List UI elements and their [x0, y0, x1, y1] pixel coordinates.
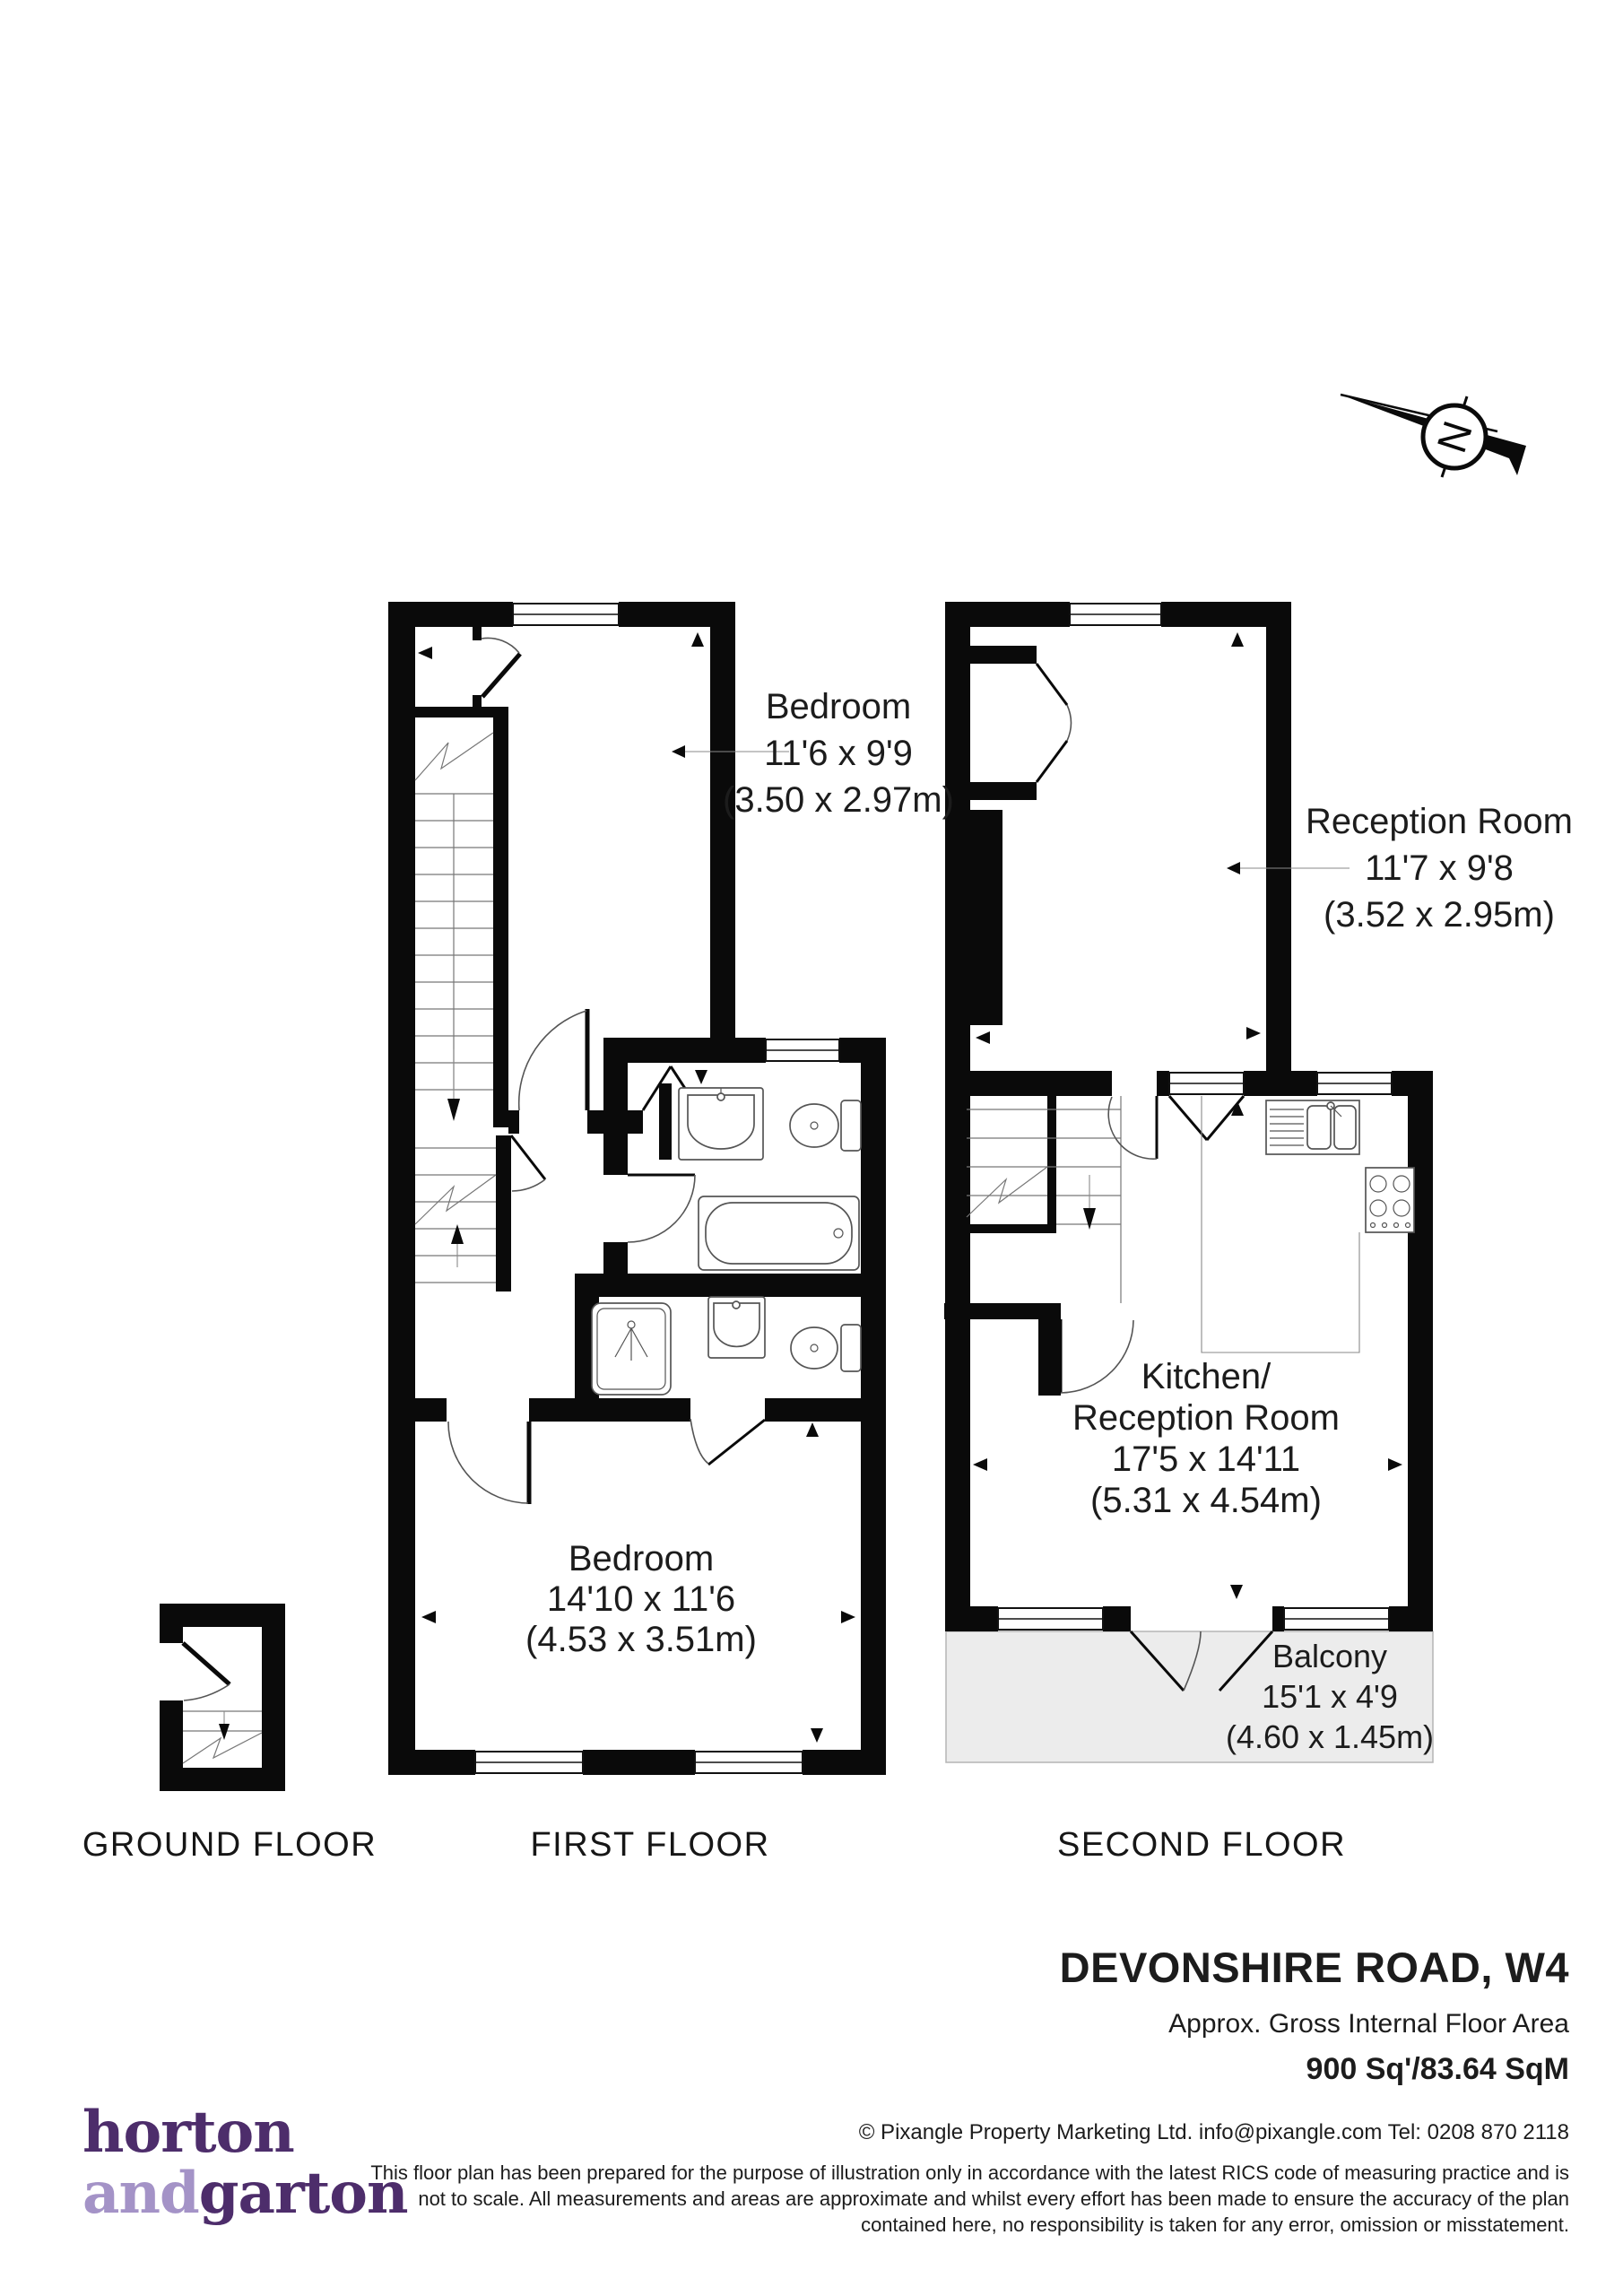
- reception-name: Reception Room: [1273, 798, 1605, 845]
- disclaimer-line-2: not to scale. All measurements and areas…: [370, 2186, 1569, 2212]
- bedroom2-size-metric: (4.53 x 3.51m): [480, 1620, 803, 1660]
- area-label-row: Approx. Gross Internal Floor Area: [1168, 2009, 1569, 2039]
- balcony-label: Balcony 15'1 x 4'9 (4.60 x 1.45m): [1186, 1636, 1473, 1757]
- bedroom1-size-metric: (3.50 x 2.97m): [681, 777, 995, 823]
- reception-size-imperial: 11'7 x 9'8: [1273, 845, 1605, 891]
- area-label: Approx. Gross Internal Floor Area: [1168, 2009, 1569, 2039]
- kitchen-reception-label: Kitchen/ Reception Room 17'5 x 14'11 (5.…: [1013, 1356, 1399, 1521]
- ground-floor-walls: [160, 1604, 285, 1791]
- bedroom1-name: Bedroom: [681, 683, 995, 730]
- copyright-row: © Pixangle Property Marketing Ltd. info@…: [859, 2120, 1569, 2145]
- ground-floor-stairs: [183, 1711, 262, 1763]
- north-compass-icon: N: [1287, 354, 1583, 511]
- kitchen-name-line2: Reception Room: [1013, 1397, 1399, 1439]
- property-address: DEVONSHIRE ROAD, W4: [1060, 1943, 1569, 1992]
- second-floor-bay-doors: [1037, 664, 1072, 782]
- ground-floor-label: GROUND FLOOR: [77, 1826, 382, 1865]
- area-value: 900 Sq'/83.64 SqM: [1306, 2052, 1569, 2087]
- balcony-name: Balcony: [1186, 1636, 1473, 1676]
- bedroom2-size-imperial: 14'10 x 11'6: [480, 1579, 803, 1620]
- bedroom1-label: Bedroom 11'6 x 9'9 (3.50 x 2.97m): [681, 683, 995, 823]
- kitchen-size-metric: (5.31 x 4.54m): [1013, 1480, 1399, 1521]
- bedroom2-name: Bedroom: [480, 1539, 803, 1579]
- kitchen-name-line1: Kitchen/: [1013, 1356, 1399, 1397]
- ground-floor-plan: [152, 1596, 296, 1798]
- second-floor-stairs: [967, 1096, 1121, 1303]
- copyright-text: © Pixangle Property Marketing Ltd. info@…: [859, 2120, 1569, 2145]
- logo-word-garton: garton: [199, 2160, 408, 2227]
- disclaimer-block: This floor plan has been prepared for th…: [370, 2160, 1569, 2238]
- horton-and-garton-logo: horton andgarton: [82, 2102, 407, 2224]
- logo-line-1: horton: [82, 2102, 407, 2163]
- title-block: DEVONSHIRE ROAD, W4: [1060, 1943, 1569, 1992]
- logo-word-horton: horton: [82, 2099, 294, 2166]
- area-value-row: 900 Sq'/83.64 SqM: [1306, 2052, 1569, 2087]
- bedroom2-label: Bedroom 14'10 x 11'6 (4.53 x 3.51m): [480, 1539, 803, 1660]
- ground-floor-door: [183, 1643, 230, 1700]
- kitchen-fixtures: [1202, 1096, 1414, 1352]
- bedroom1-size-imperial: 11'6 x 9'9: [681, 730, 995, 777]
- second-floor-plan: [942, 596, 1444, 1780]
- balcony-size-imperial: 15'1 x 4'9: [1186, 1676, 1473, 1717]
- floorplan-page: N: [0, 0, 1623, 2296]
- first-floor-stairs: [415, 733, 496, 1283]
- first-floor-label: FIRST FLOOR: [484, 1826, 816, 1865]
- first-floor-bathroom-fixtures: [592, 1088, 861, 1395]
- balcony-size-metric: (4.60 x 1.45m): [1186, 1717, 1473, 1757]
- disclaimer-line-3: contained here, no responsibility is tak…: [370, 2212, 1569, 2238]
- logo-word-and: and: [82, 2160, 199, 2227]
- second-floor-label: SECOND FLOOR: [1036, 1826, 1367, 1865]
- disclaimer-line-1: This floor plan has been prepared for th…: [370, 2160, 1569, 2186]
- reception-size-metric: (3.52 x 2.95m): [1273, 891, 1605, 938]
- logo-line-2: andgarton: [82, 2163, 407, 2224]
- reception-label: Reception Room 11'7 x 9'8 (3.52 x 2.95m): [1273, 798, 1605, 938]
- kitchen-size-imperial: 17'5 x 14'11: [1013, 1439, 1399, 1480]
